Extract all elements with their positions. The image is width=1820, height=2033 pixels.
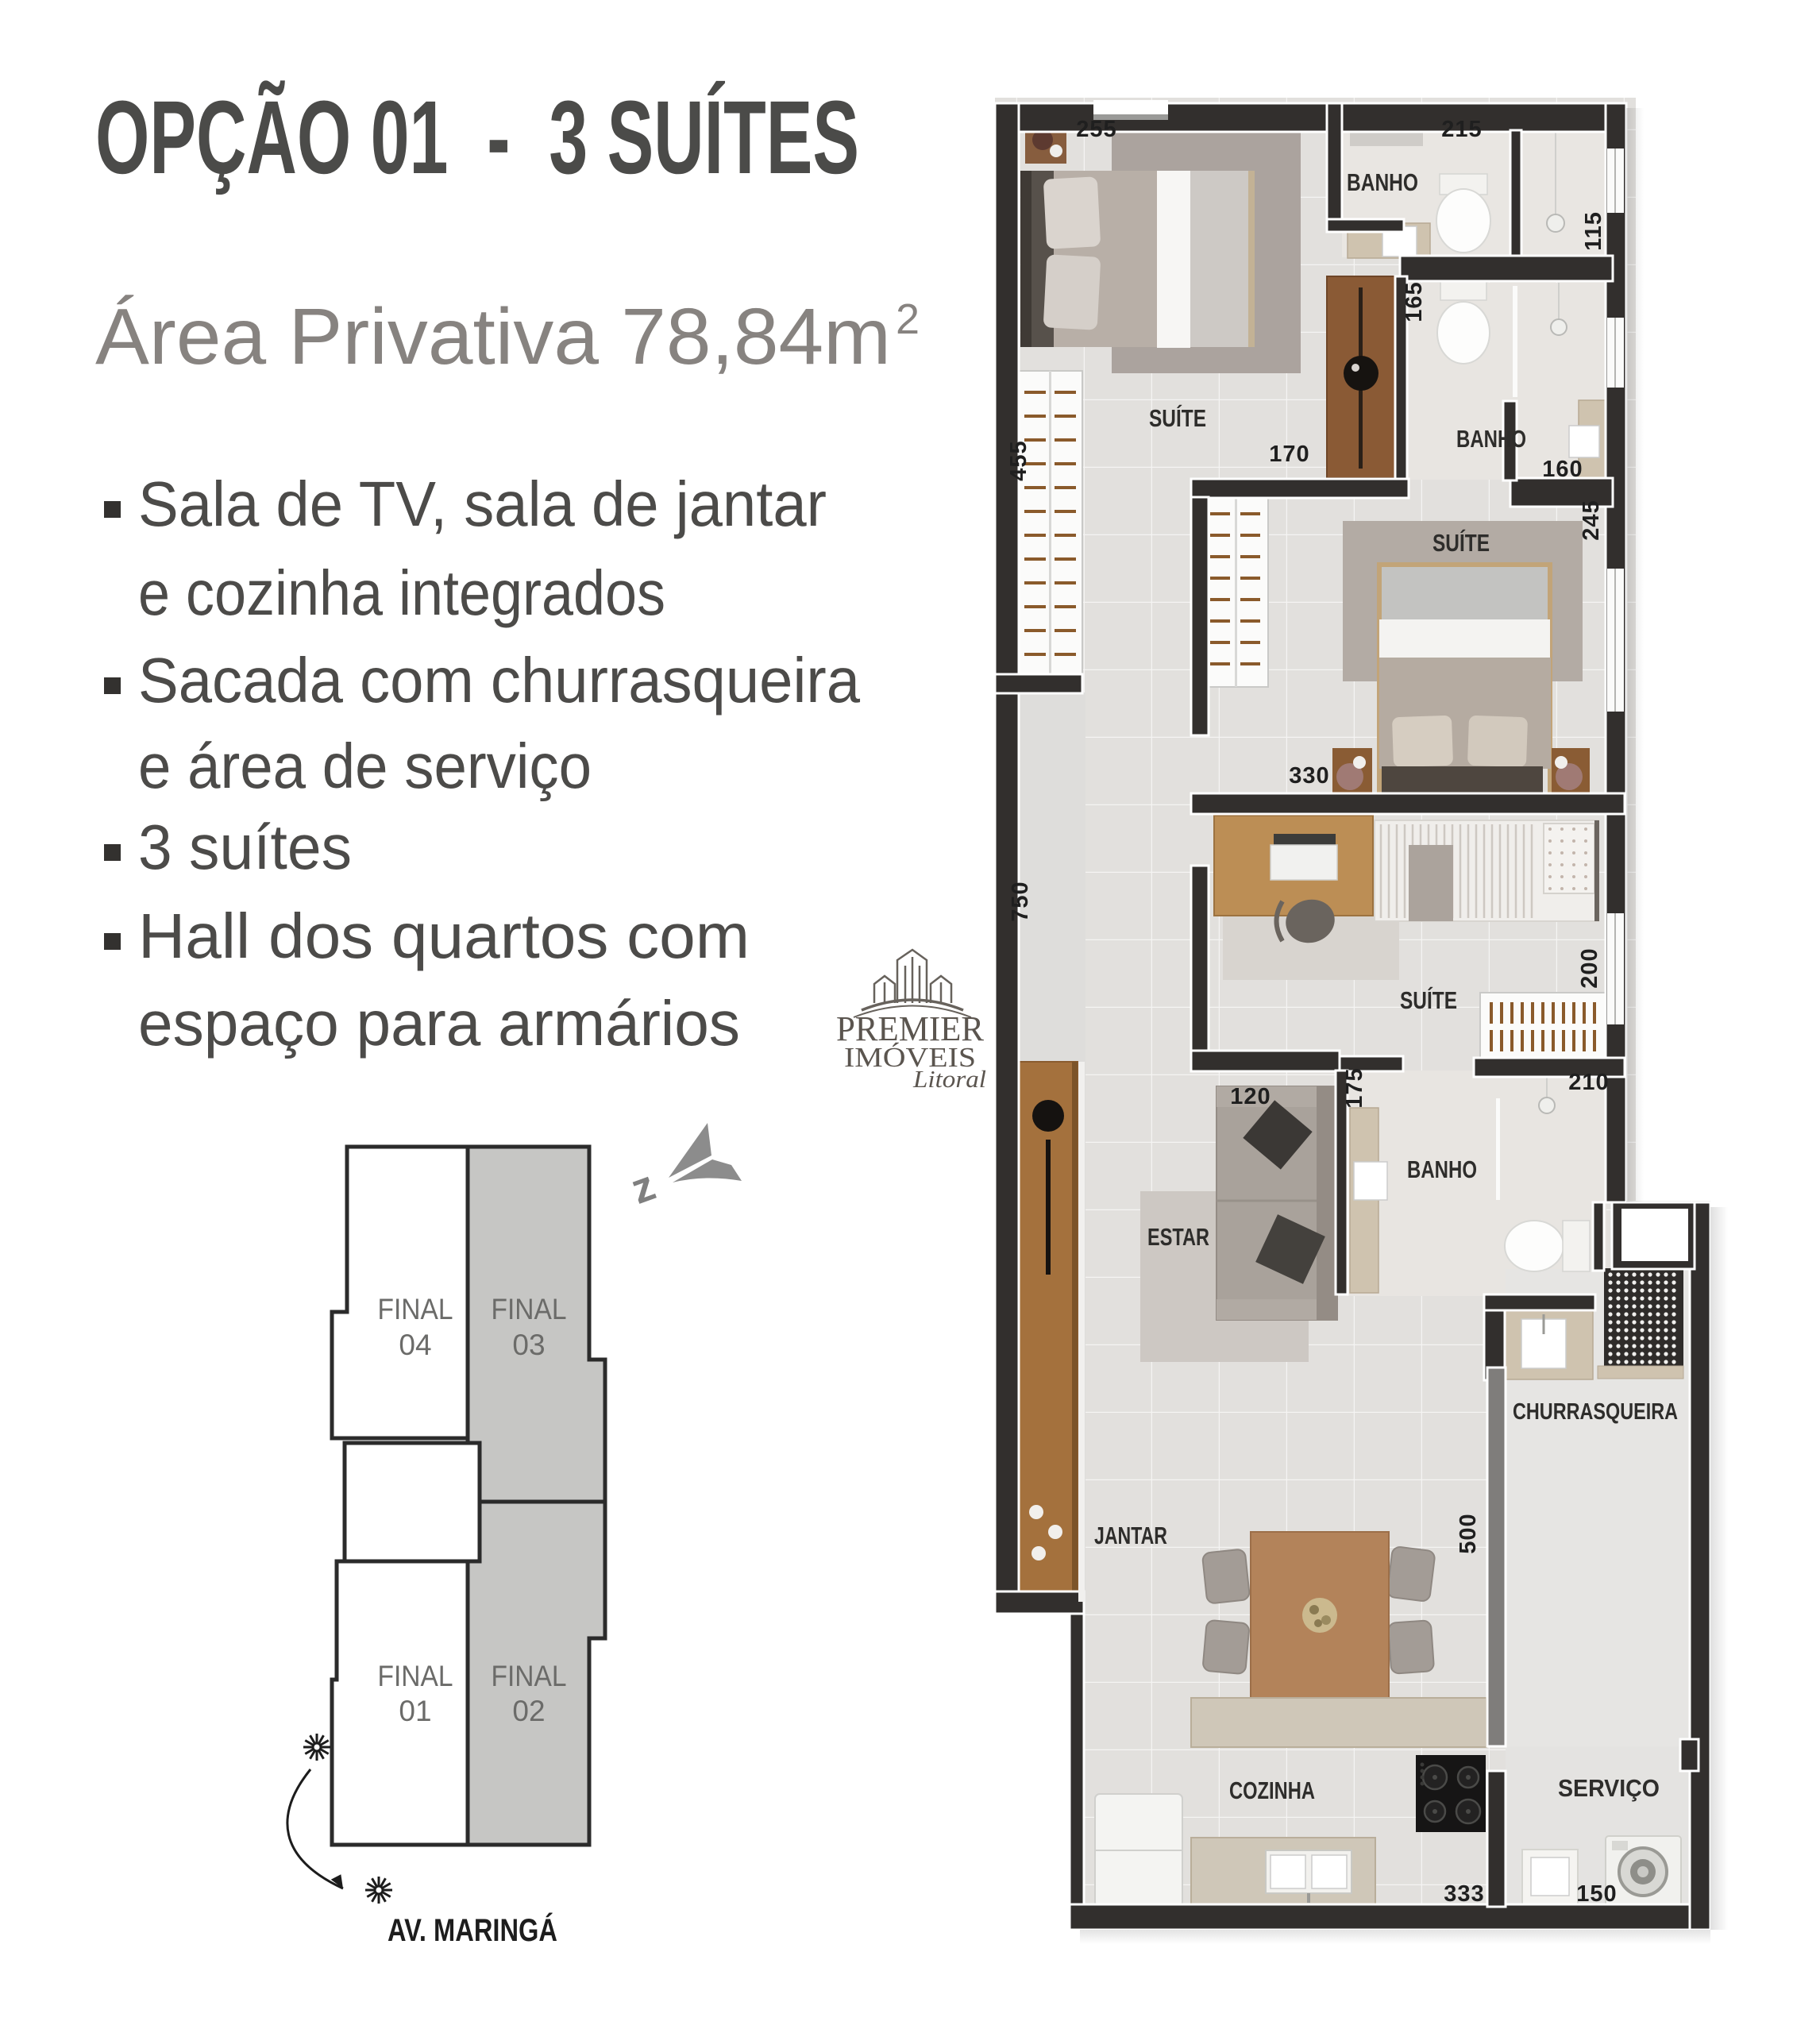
svg-text:OPÇÃO 01 - 3 SUÍTES: OPÇÃO 01 - 3 SUÍTES xyxy=(95,79,859,195)
svg-text:03: 03 xyxy=(512,1329,545,1361)
svg-text:BANHO: BANHO xyxy=(1456,425,1526,453)
svg-text:Litoral: Litoral xyxy=(912,1065,986,1093)
svg-text:165: 165 xyxy=(1402,281,1427,322)
svg-text:01: 01 xyxy=(399,1695,431,1727)
svg-text:SUÍTE: SUÍTE xyxy=(1400,986,1457,1014)
svg-text:FINAL: FINAL xyxy=(492,1293,567,1325)
svg-text:210: 210 xyxy=(1568,1070,1609,1095)
svg-text:ESTAR: ESTAR xyxy=(1147,1223,1209,1251)
svg-text:FINAL: FINAL xyxy=(378,1293,453,1325)
svg-text:120: 120 xyxy=(1230,1084,1271,1109)
svg-text:170: 170 xyxy=(1269,442,1309,467)
svg-text:Hall dos quartos com: Hall dos quartos com xyxy=(138,901,750,971)
svg-text:BANHO: BANHO xyxy=(1347,168,1418,196)
svg-text:245: 245 xyxy=(1579,500,1604,540)
svg-text:500: 500 xyxy=(1456,1513,1481,1553)
svg-text:BANHO: BANHO xyxy=(1407,1155,1477,1183)
svg-text:FINAL: FINAL xyxy=(492,1660,567,1692)
svg-text:200: 200 xyxy=(1577,947,1602,988)
svg-text:espaço para armários: espaço para armários xyxy=(138,988,740,1059)
svg-text:Sala de TV, sala de jantar: Sala de TV, sala de jantar xyxy=(138,469,827,539)
svg-text:FINAL: FINAL xyxy=(378,1660,453,1692)
svg-text:175: 175 xyxy=(1342,1067,1367,1108)
svg-text:AV. MARINGÁ: AV. MARINGÁ xyxy=(388,1912,557,1948)
svg-text:CHURRASQUEIRA: CHURRASQUEIRA xyxy=(1513,1399,1678,1425)
svg-text:Área Privativa 78,84m: Área Privativa 78,84m xyxy=(95,292,891,381)
svg-text:e área de serviço: e área de serviço xyxy=(138,731,592,801)
svg-text:SUÍTE: SUÍTE xyxy=(1432,529,1490,557)
svg-text:SUÍTE: SUÍTE xyxy=(1149,404,1206,432)
svg-text:04: 04 xyxy=(399,1329,431,1361)
svg-text:115: 115 xyxy=(1581,211,1606,251)
svg-text:Sacada com churrasqueira: Sacada com churrasqueira xyxy=(138,645,860,716)
svg-text:330: 330 xyxy=(1289,763,1329,789)
svg-text:150: 150 xyxy=(1576,1881,1617,1907)
svg-text:02: 02 xyxy=(512,1695,545,1727)
svg-text:e cozinha integrados: e cozinha integrados xyxy=(138,557,665,628)
svg-text:COZINHA: COZINHA xyxy=(1229,1776,1315,1804)
svg-text:3 suítes: 3 suítes xyxy=(138,812,352,882)
svg-text:255: 255 xyxy=(1076,117,1116,142)
svg-text:333: 333 xyxy=(1444,1881,1484,1907)
svg-text:JANTAR: JANTAR xyxy=(1094,1522,1167,1549)
svg-text:2: 2 xyxy=(896,295,920,343)
svg-text:SERVIÇO: SERVIÇO xyxy=(1558,1774,1660,1802)
svg-text:455: 455 xyxy=(1006,440,1031,480)
svg-text:160: 160 xyxy=(1542,457,1583,482)
svg-text:215: 215 xyxy=(1441,117,1482,142)
svg-text:750: 750 xyxy=(1008,881,1033,921)
